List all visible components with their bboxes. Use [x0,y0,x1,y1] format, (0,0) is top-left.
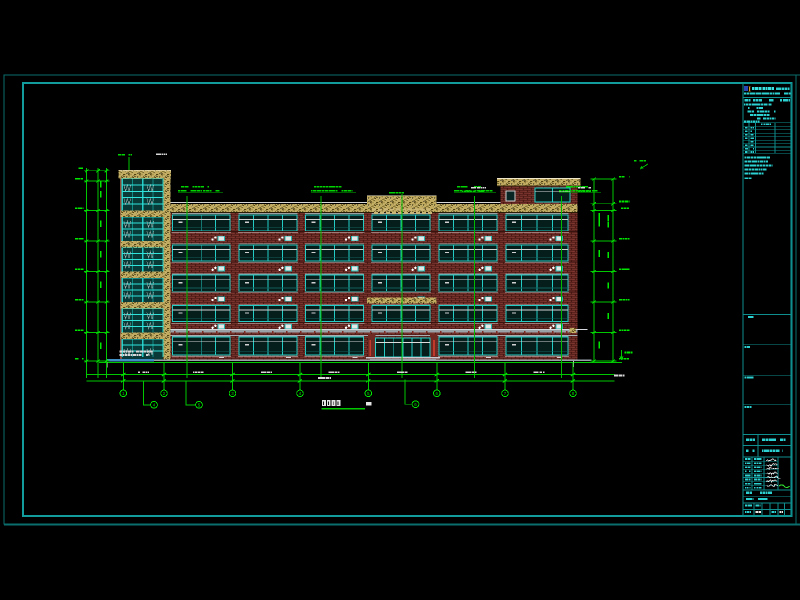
svg-text:I: I [748,85,751,94]
